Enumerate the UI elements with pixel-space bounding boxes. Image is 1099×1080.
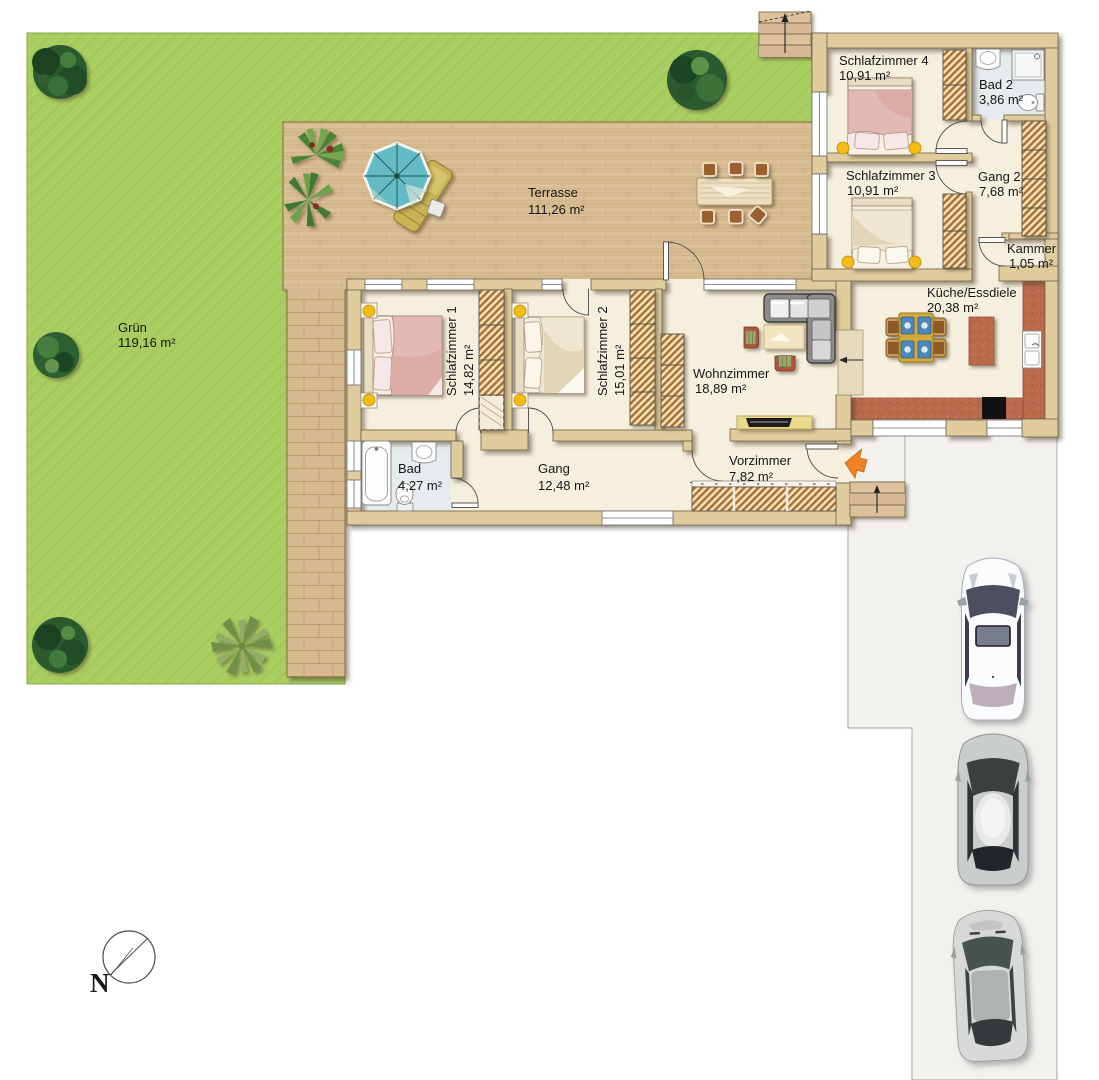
svg-text:10,91 m²: 10,91 m² (839, 68, 891, 83)
svg-text:N: N (90, 968, 110, 998)
svg-text:1,05 m²: 1,05 m² (1009, 256, 1054, 271)
svg-text:7,82 m²: 7,82 m² (729, 469, 774, 484)
svg-text:Terrasse: Terrasse (528, 185, 578, 200)
svg-text:Kammer: Kammer (1007, 241, 1057, 256)
svg-text:7,68 m²: 7,68 m² (979, 184, 1024, 199)
svg-text:10,91 m²: 10,91 m² (847, 183, 899, 198)
svg-text:20,38 m²: 20,38 m² (927, 300, 979, 315)
svg-text:14,82 m²: 14,82 m² (461, 344, 476, 396)
svg-text:Vorzimmer: Vorzimmer (729, 453, 792, 468)
svg-text:Wohnzimmer: Wohnzimmer (693, 366, 770, 381)
svg-text:Küche/Essdiele: Küche/Essdiele (927, 285, 1017, 300)
svg-text:Gang 2: Gang 2 (978, 169, 1021, 184)
svg-text:Schlafzimmer 4: Schlafzimmer 4 (839, 53, 929, 68)
svg-text:Gang: Gang (538, 461, 570, 476)
svg-text:18,89 m²: 18,89 m² (695, 381, 747, 396)
svg-text:119,16 m²: 119,16 m² (118, 335, 176, 350)
svg-text:Grün: Grün (118, 320, 147, 335)
svg-text:Schlafzimmer 1: Schlafzimmer 1 (444, 306, 459, 396)
svg-text:15,01 m²: 15,01 m² (612, 344, 627, 396)
svg-text:Schlafzimmer 2: Schlafzimmer 2 (595, 306, 610, 396)
svg-text:4,27 m²: 4,27 m² (398, 478, 443, 493)
svg-text:111,26 m²: 111,26 m² (528, 202, 585, 217)
svg-text:Bad 2: Bad 2 (979, 77, 1013, 92)
svg-text:3,86 m²: 3,86 m² (979, 92, 1024, 107)
svg-text:Schlafzimmer 3: Schlafzimmer 3 (846, 168, 936, 183)
svg-text:Bad: Bad (398, 461, 421, 476)
svg-text:12,48 m²: 12,48 m² (538, 478, 590, 493)
